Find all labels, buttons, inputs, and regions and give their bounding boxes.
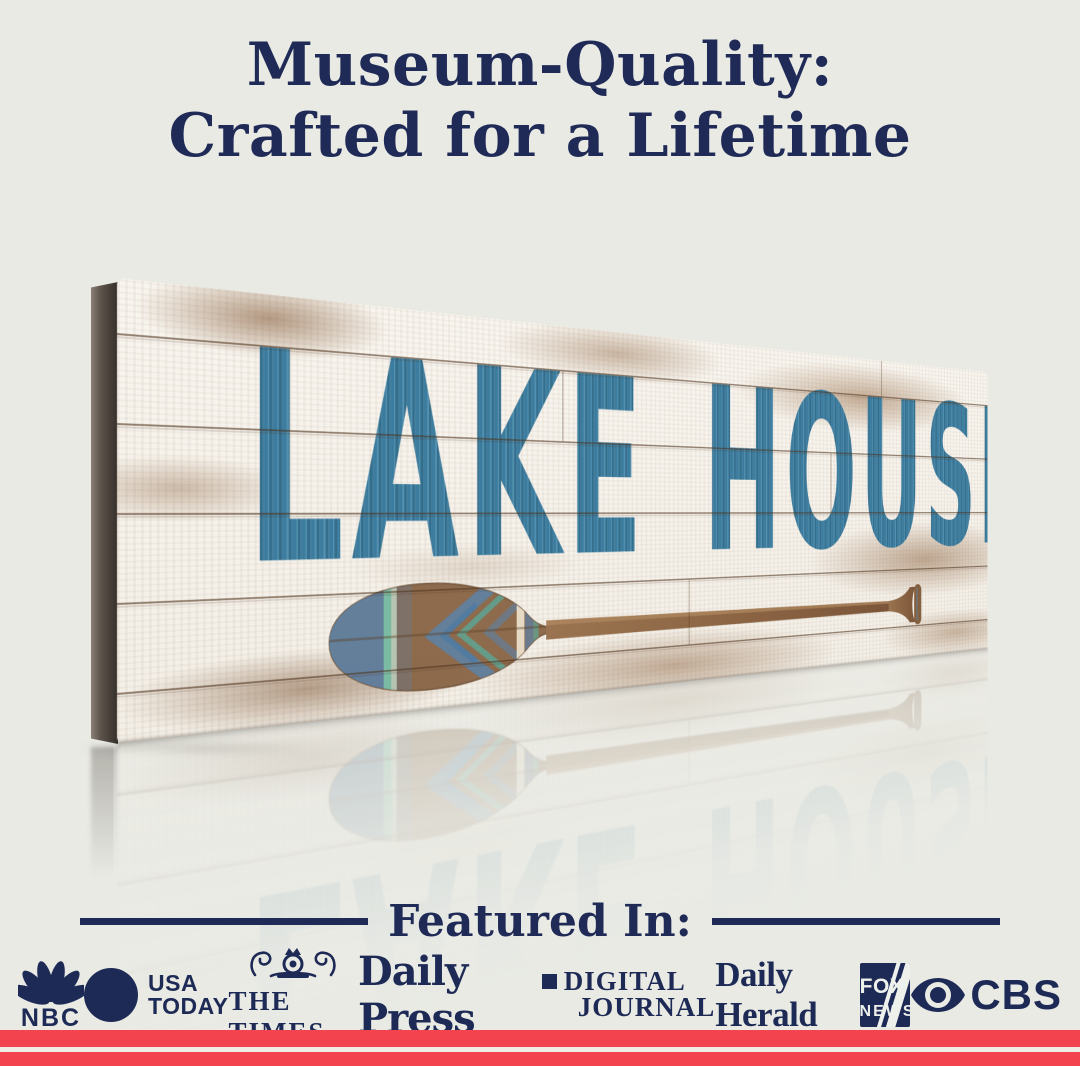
logo-daily-herald: Daily Herald [715, 955, 859, 1035]
nbc-wordmark: NBC [21, 1004, 81, 1033]
plank-joint [881, 361, 882, 396]
promo-graphic: Museum-Quality: Crafted for a Lifetime L… [0, 0, 1080, 1066]
logo-daily-press: Daily Press [358, 948, 542, 1042]
featured-in-label: Featured In: [388, 896, 692, 947]
featured-rule-left [80, 918, 368, 925]
featured-rule-right [712, 918, 1000, 925]
nbc-peacock-icon [18, 958, 84, 1006]
press-logo-bar: NBC USA TODAY [18, 948, 1062, 1042]
digital-journal-wordmark: DIGITAL JOURNAL [564, 969, 716, 1020]
plank-joint [831, 453, 832, 512]
footer-stripe-red [0, 1030, 1080, 1047]
logo-fox-news: FOX NEWS [860, 963, 911, 1027]
logo-cbs: CBS [910, 971, 1062, 1019]
footer-stripes [0, 1030, 1080, 1066]
footer-stripe-red [0, 1052, 1080, 1066]
digital-journal-square-icon [542, 974, 557, 989]
logo-digital-journal: DIGITAL JOURNAL [542, 969, 716, 1020]
the-times-crest-icon [241, 943, 345, 985]
canvas-side-edge [91, 282, 118, 744]
canvas-3d: LAKE HOUSE [117, 278, 988, 743]
featured-in-band: Featured In: [80, 896, 1000, 946]
logo-usa-today: USA TODAY [84, 968, 228, 1022]
fox-news-wordmark: NEWS [860, 1003, 911, 1021]
cbs-wordmark: CBS [970, 971, 1062, 1019]
usa-today-wordmark: USA TODAY [148, 972, 228, 1017]
cbs-eye-icon [910, 977, 966, 1013]
logo-nbc: NBC [18, 958, 84, 1033]
usa-today-circle-icon [84, 968, 138, 1022]
plank-joint [689, 580, 690, 645]
fox-wordmark: FOX [860, 975, 905, 999]
plank-joint [562, 371, 563, 441]
